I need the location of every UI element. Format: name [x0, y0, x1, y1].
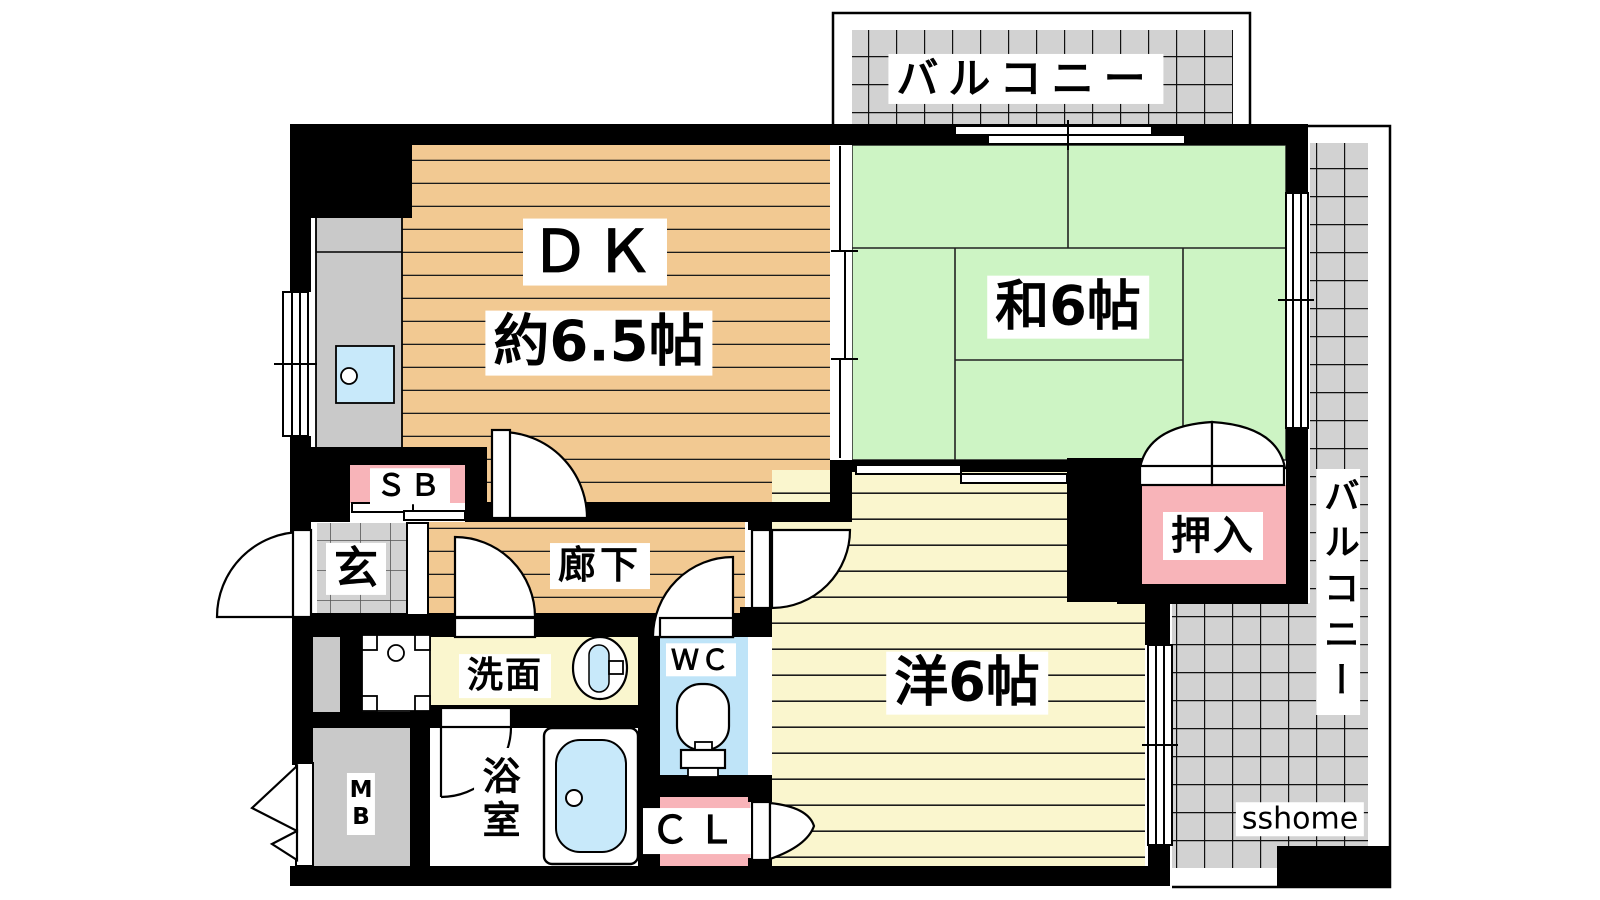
drain-icon — [566, 790, 582, 806]
label-genkan: 玄 — [326, 543, 386, 595]
meterbox-doors — [252, 766, 297, 860]
label-senmen: 洗面 — [459, 654, 551, 698]
toilet — [677, 684, 729, 777]
label-balcony-right: バルコニー — [1316, 469, 1360, 715]
label-rouka: 廊下 — [550, 543, 650, 589]
bathtub — [544, 728, 638, 864]
label-dk-size: 約6.5帖 — [485, 311, 712, 376]
youshitsu-right-window — [1142, 645, 1178, 845]
label-dk: ＤＫ — [523, 219, 667, 286]
washbasin — [573, 637, 627, 699]
watermark-sshome: sshome — [1236, 802, 1364, 836]
washer-pan — [362, 635, 430, 711]
label-meterbox: MB — [347, 773, 375, 835]
kitchen-counter — [316, 202, 402, 455]
dk-left-window — [274, 292, 317, 436]
floorplan-drawing — [0, 0, 1600, 900]
duct-shaft — [313, 635, 340, 712]
genkan-step — [407, 523, 428, 615]
label-wc: ＷＣ — [666, 643, 736, 676]
label-shoebox: ＳＢ — [370, 468, 450, 504]
label-bath: 浴室 — [474, 748, 520, 852]
label-balcony-top: バルコニー — [888, 54, 1163, 104]
faucet-icon — [341, 368, 357, 384]
label-washitsu: 和6帖 — [987, 276, 1149, 339]
label-youshitsu: 洋6帖 — [886, 652, 1048, 715]
meterbox-door-frame — [296, 763, 313, 866]
label-closet: ＣＬ — [643, 808, 751, 854]
floorplan: バルコニー ＤＫ 約6.5帖 和6帖 洋6帖 押入 廊下 玄 ＳＢ 洗面 ＷＣ … — [0, 0, 1600, 900]
genkan-sliding-door — [352, 503, 465, 520]
label-oshiire: 押入 — [1163, 512, 1263, 560]
entrance-door — [217, 530, 311, 617]
